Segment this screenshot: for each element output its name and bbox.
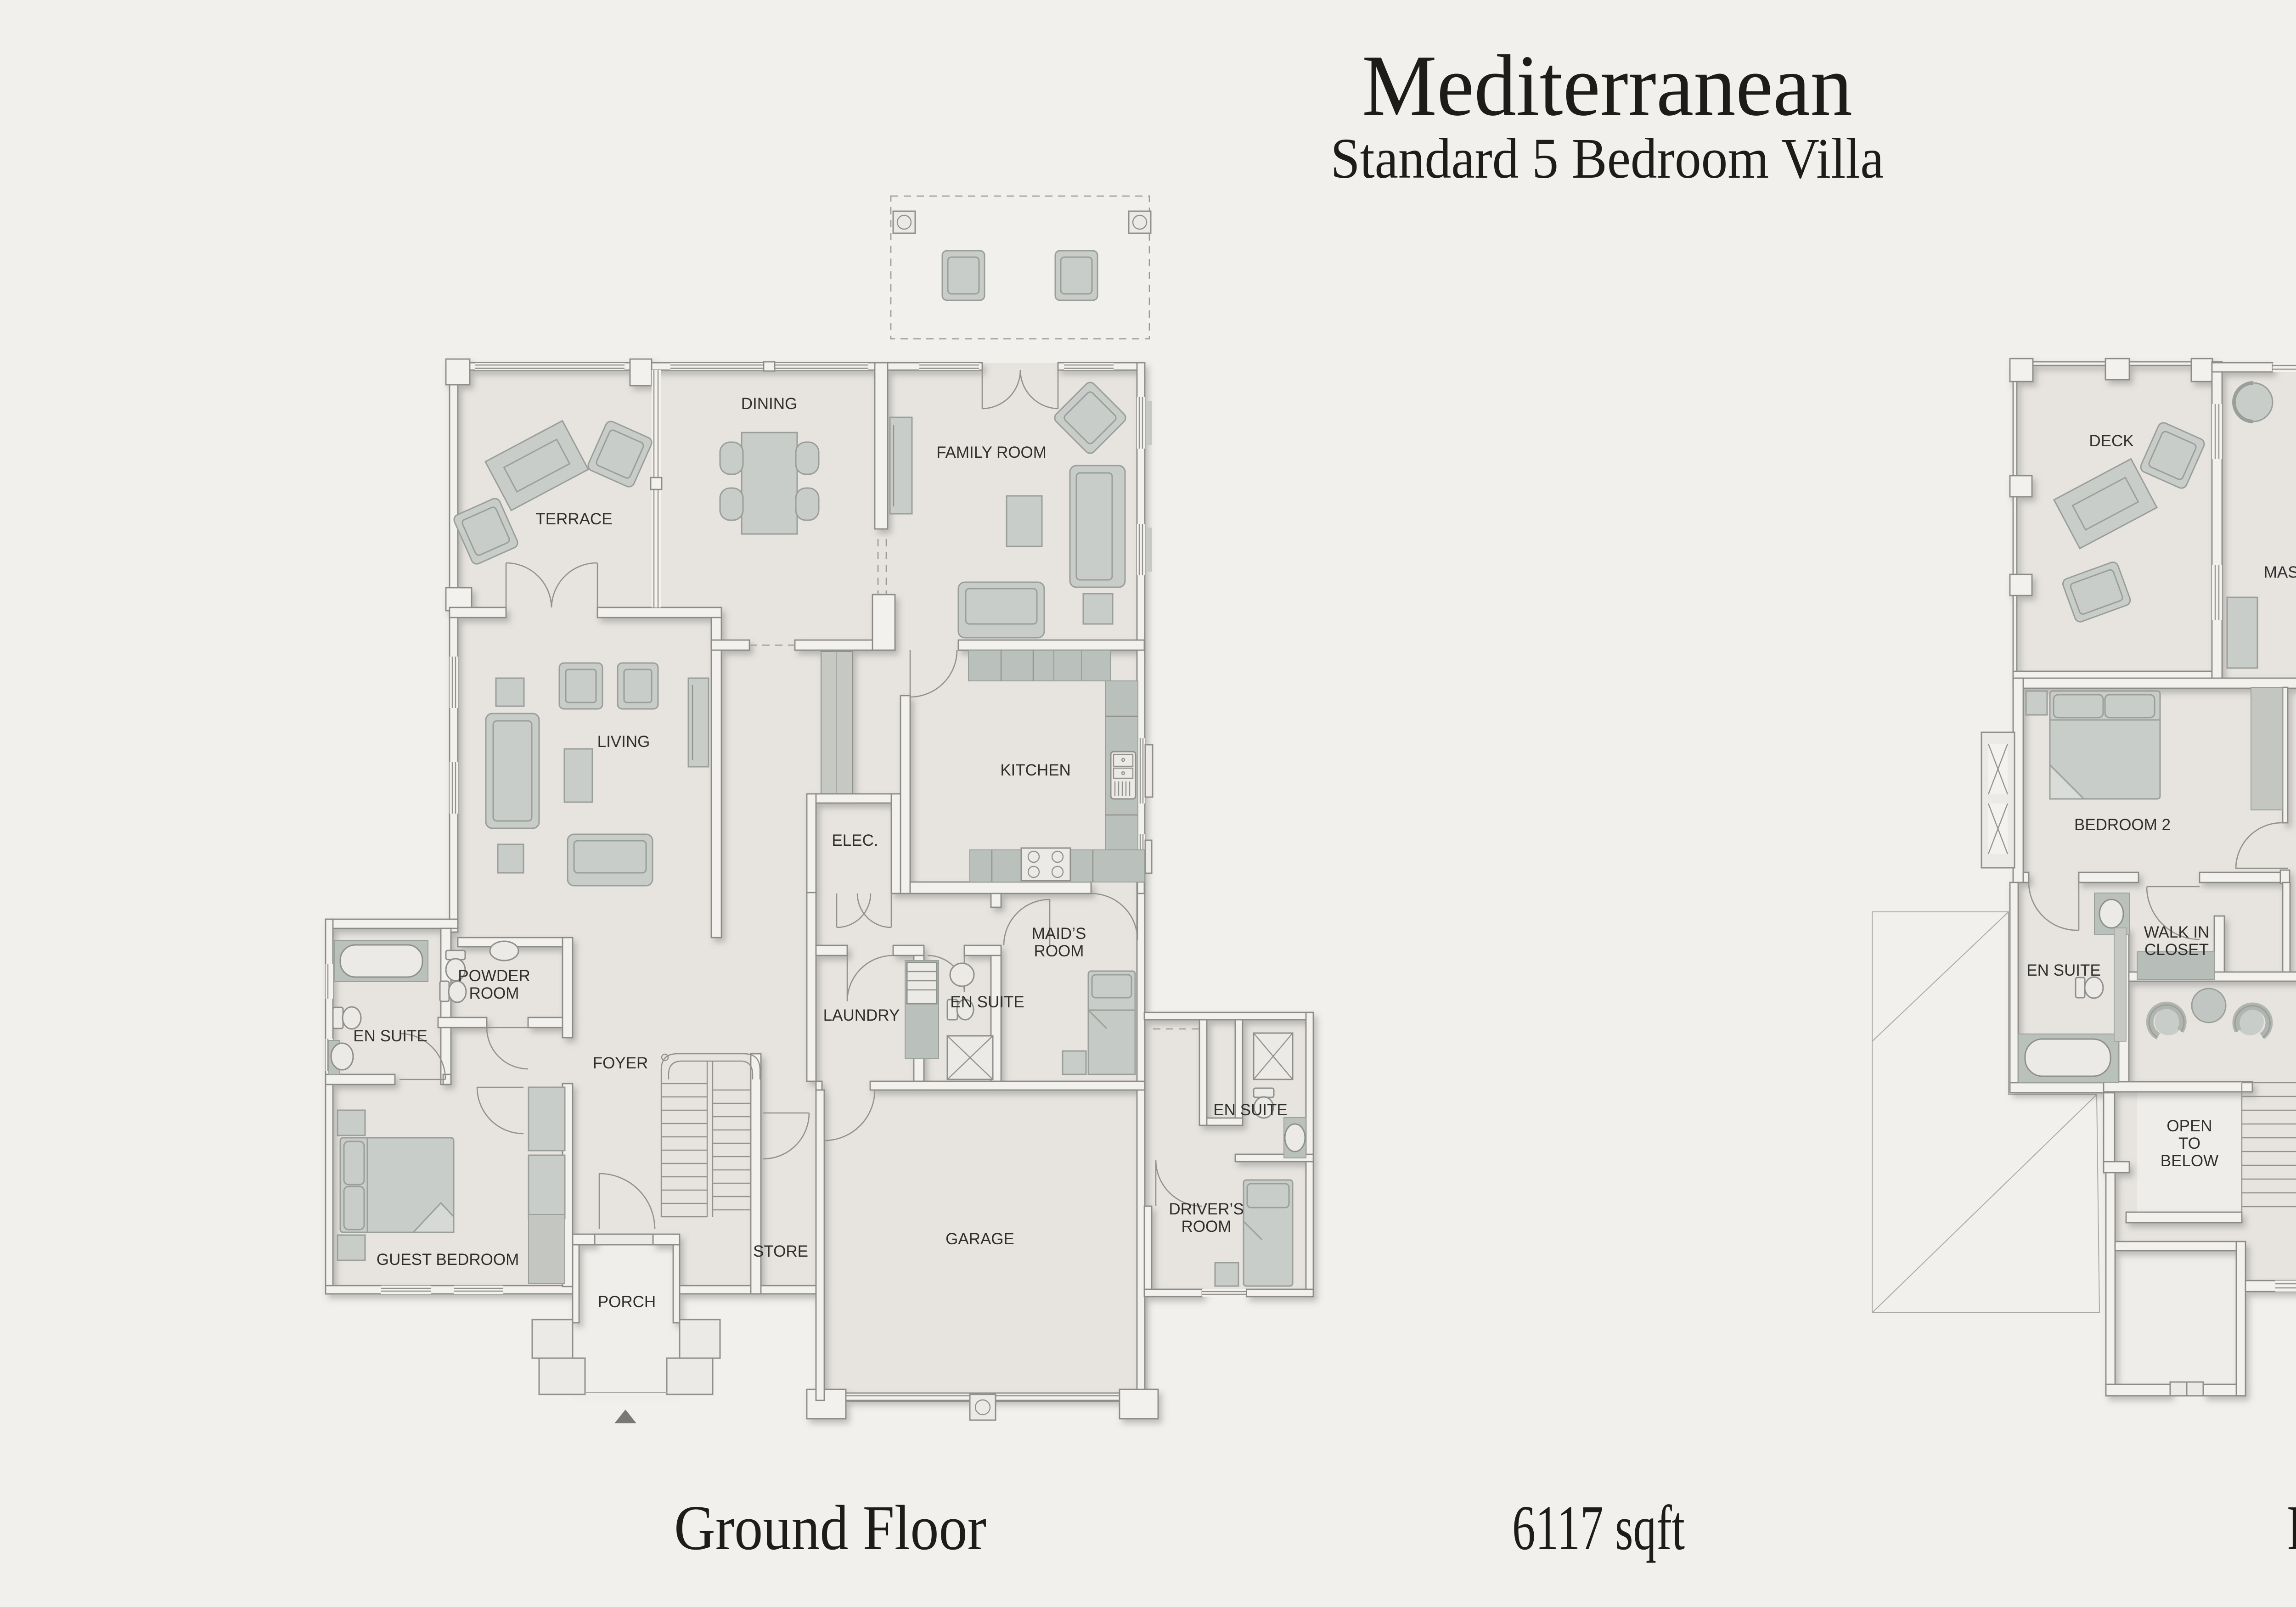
svg-text:POWDER: POWDER — [458, 967, 530, 985]
svg-text:MASTER BEDROOM: MASTER BEDROOM — [2264, 563, 2296, 581]
svg-text:DRIVER’S: DRIVER’S — [1169, 1200, 1244, 1218]
svg-text:FAMILY ROOM: FAMILY ROOM — [936, 444, 1047, 461]
svg-text:Ground Floor: Ground Floor — [674, 1493, 986, 1563]
svg-text:TERRACE: TERRACE — [535, 510, 612, 528]
svg-text:EN SUITE: EN SUITE — [353, 1027, 427, 1045]
svg-text:STORE: STORE — [753, 1242, 808, 1260]
svg-text:WALK IN: WALK IN — [2144, 923, 2210, 941]
svg-text:ELEC.: ELEC. — [832, 832, 878, 849]
svg-text:KITCHEN: KITCHEN — [1000, 761, 1071, 779]
svg-text:LIVING: LIVING — [597, 733, 650, 751]
svg-text:EN SUITE: EN SUITE — [950, 993, 1024, 1011]
svg-text:Standard 5 Bedroom Villa: Standard 5 Bedroom Villa — [1331, 127, 1884, 191]
svg-text:CLOSET: CLOSET — [2144, 941, 2209, 959]
svg-text:PORCH: PORCH — [598, 1293, 656, 1311]
svg-text:EN SUITE: EN SUITE — [2026, 961, 2100, 979]
svg-text:EN SUITE: EN SUITE — [1213, 1101, 1287, 1119]
svg-text:ROOM: ROOM — [1182, 1218, 1232, 1236]
svg-text:LAUNDRY: LAUNDRY — [823, 1006, 900, 1024]
svg-text:First Floor: First Floor — [2287, 1493, 2296, 1563]
svg-text:GUEST BEDROOM: GUEST BEDROOM — [377, 1251, 519, 1269]
svg-text:BELOW: BELOW — [2161, 1152, 2218, 1170]
svg-text:Mediterranean: Mediterranean — [1362, 38, 1852, 134]
svg-text:TO: TO — [2178, 1135, 2200, 1152]
svg-text:DECK: DECK — [2089, 432, 2133, 450]
svg-text:BEDROOM 2: BEDROOM 2 — [2074, 816, 2171, 834]
svg-text:OPEN: OPEN — [2167, 1117, 2212, 1135]
svg-text:FOYER: FOYER — [593, 1054, 648, 1072]
svg-text:MAID’S: MAID’S — [1032, 925, 1086, 943]
svg-text:GARAGE: GARAGE — [945, 1230, 1014, 1248]
svg-text:ROOM: ROOM — [1034, 942, 1084, 960]
svg-text:DINING: DINING — [741, 395, 798, 413]
svg-text:ROOM: ROOM — [469, 984, 519, 1002]
svg-text:6117 sqft: 6117 sqft — [1512, 1493, 1685, 1563]
